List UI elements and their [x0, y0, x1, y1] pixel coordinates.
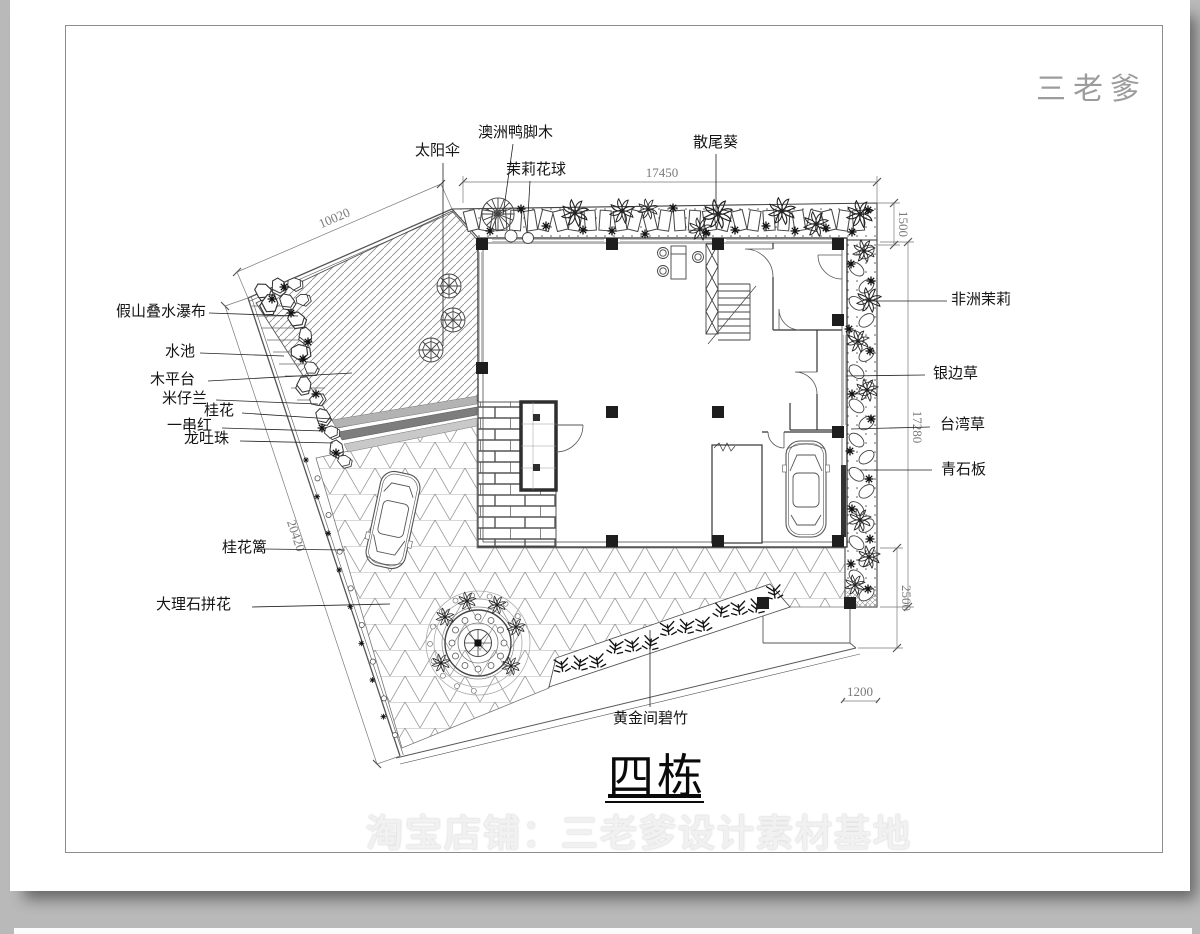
label-osmanthus-hedge: 桂花篱 [222, 540, 267, 557]
dim-right-bottom: 2500 [899, 585, 914, 611]
label-jasmine-ball: 茉莉花球 [506, 162, 566, 179]
label-golden-bamboo: 黄金间碧竹 [613, 711, 688, 728]
label-areca-palm: 散尾葵 [693, 135, 738, 152]
schefflera-tree [482, 198, 514, 230]
label-marble-mosaic: 大理石拼花 [156, 597, 231, 614]
title-underline-thick [608, 794, 701, 798]
shop-watermark: 淘宝店铺：三老爹设计素材基地 [366, 803, 912, 857]
site-plan-drawing: 17450 10020 20420 1500 17280 2500 1200 [0, 0, 1200, 934]
label-pool: 水池 [165, 344, 195, 361]
label-bluestone-slab: 青石板 [941, 462, 986, 479]
label-silver-edge-grass: 银边草 [933, 366, 978, 383]
label-rockery-waterfall: 假山叠水瀑布 [116, 304, 206, 321]
dim-top: 17450 [646, 165, 679, 180]
label-taiwan-grass: 台湾草 [940, 417, 985, 434]
label-aglaia: 米仔兰 [162, 391, 207, 408]
next-page-edge [14, 928, 1192, 934]
dim-bottom-right: 1200 [847, 684, 873, 699]
dim-top-left: 10020 [316, 205, 352, 232]
label-african-jasmine: 非洲茉莉 [951, 292, 1011, 309]
label-wood-deck: 木平台 [150, 372, 195, 389]
dim-left: 20420 [284, 518, 308, 554]
label-sun-umbrella: 太阳伞 [415, 143, 460, 160]
label-bleeding-heart-vine: 龙吐珠 [184, 431, 229, 448]
dim-right-top: 1500 [896, 211, 911, 237]
label-australian-schefflera: 澳洲鸭脚木 [478, 125, 553, 142]
brand-logo: 三老爹 [1036, 64, 1147, 108]
